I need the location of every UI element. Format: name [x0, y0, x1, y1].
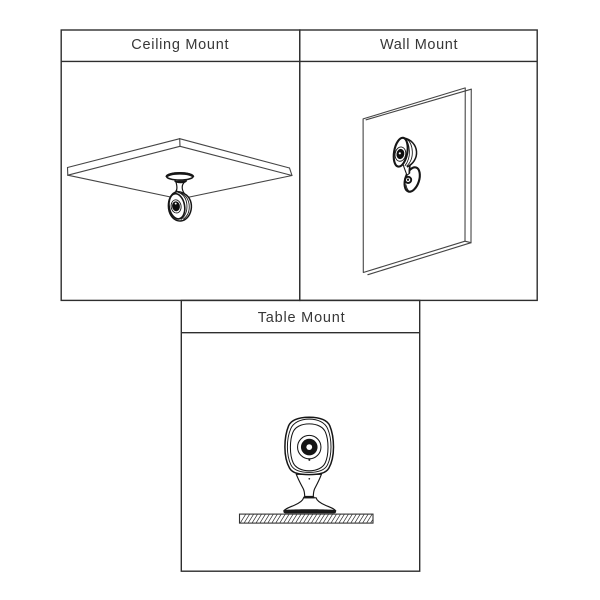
svg-text:Wall Mount: Wall Mount	[380, 37, 458, 53]
svg-text:Ceiling Mount: Ceiling Mount	[131, 37, 228, 53]
svg-text:Table Mount: Table Mount	[258, 310, 345, 326]
